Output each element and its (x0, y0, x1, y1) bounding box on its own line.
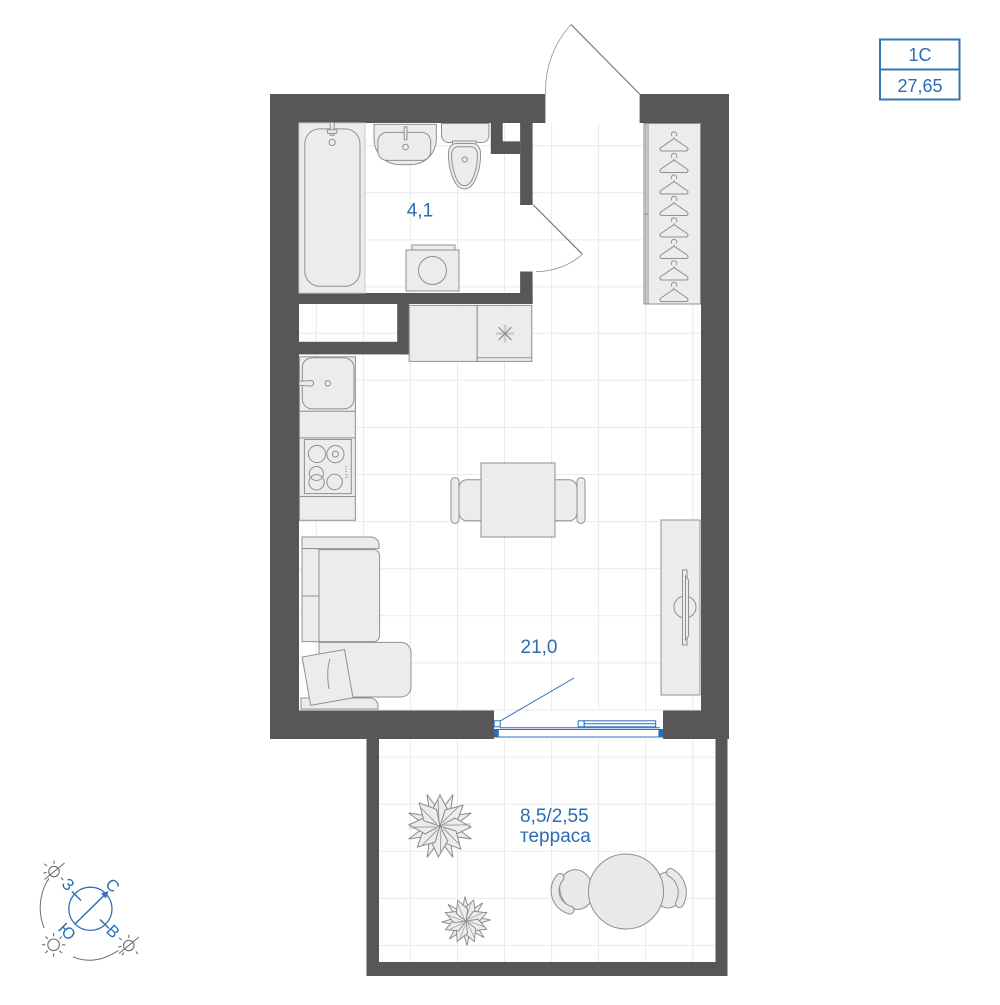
svg-text:терраса: терраса (520, 826, 591, 847)
svg-text:8,5/2,55: 8,5/2,55 (520, 806, 589, 827)
svg-text:21,0: 21,0 (521, 637, 558, 658)
svg-text:1С: 1С (908, 45, 931, 65)
svg-text:4,1: 4,1 (407, 201, 433, 222)
svg-text:27,65: 27,65 (897, 76, 942, 96)
